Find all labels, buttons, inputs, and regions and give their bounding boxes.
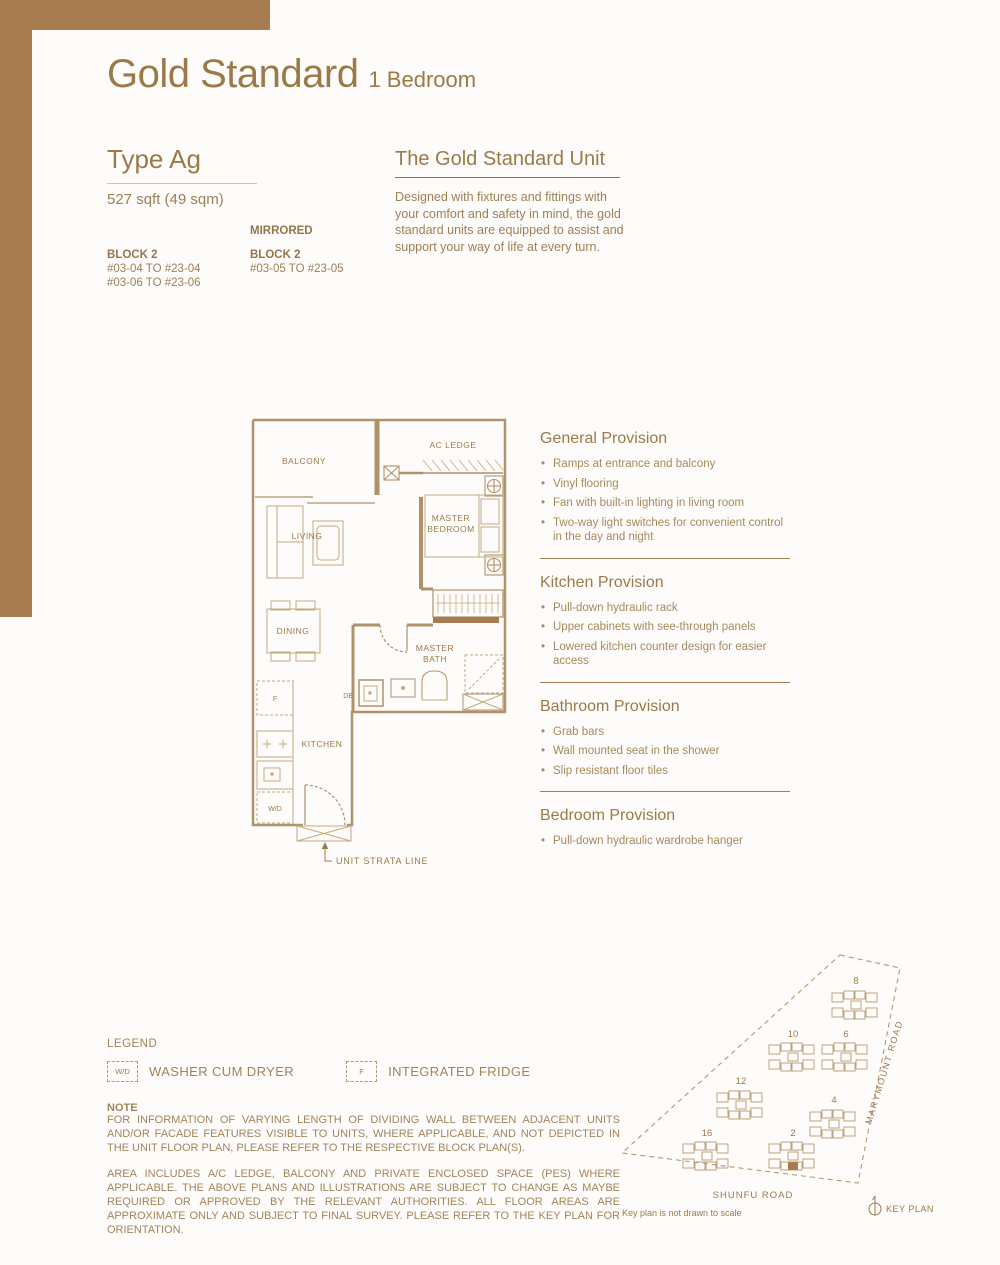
page-title: Gold Standard [107,52,358,97]
keyplan-block-label: 10 [788,1029,799,1040]
washer-dryer-symbol: W/D [107,1061,138,1082]
mirrored-label: MIRRORED [250,224,344,238]
note-section: NOTE FOR INFORMATION OF VARYING LENGTH O… [107,1102,620,1250]
note-paragraph: AREA INCLUDES A/C LEDGE, BALCONY AND PRI… [107,1168,620,1237]
brochure-page: Gold Standard 1 Bedroom Type Ag 527 sqft… [0,0,1000,1265]
keyplan-block-label: 16 [702,1128,713,1139]
label-kitchen: KITCHEN [302,739,343,749]
provision-heading-general: General Provision [540,430,790,448]
keyplan-block-label: 8 [853,976,858,987]
provision-heading-kitchen: Kitchen Provision [540,574,790,592]
provision-item: Pull-down hydraulic rack [540,601,790,616]
header: Gold Standard 1 Bedroom [107,52,476,97]
wardrobe-shelf [433,617,499,623]
keyplan-block-cluster [822,1043,867,1071]
provision-item: Vinyl flooring [540,477,790,492]
ac-ledge-hatch [423,460,503,471]
keyplan-block-label: 2 [790,1128,795,1139]
label-master-bedroom: MASTER [432,513,470,523]
strata-annotation [322,842,332,861]
unit-heading: The Gold Standard Unit [395,148,605,171]
label-balcony: BALCONY [282,456,326,466]
unit-range: #03-05 TO #23-05 [250,262,344,276]
keyplan-block-cluster [810,1110,855,1138]
road-label-marymount: MARYMOUNT ROAD [864,1019,905,1125]
section-divider [540,682,790,683]
provision-item: Grab bars [540,725,790,740]
label-ac-ledge: AC LEDGE [430,440,477,450]
block-info-primary: BLOCK 2 #03-04 TO #23-04 #03-06 TO #23-0… [107,248,201,290]
keyplan-label: KEY PLAN [886,1204,934,1214]
provision-item: Two-way light switches for convenient co… [540,516,790,545]
keyplan-block-cluster [717,1091,762,1119]
keyplan-disclaimer: Key plan is not drawn to scale [622,1208,742,1218]
type-rule [107,183,257,184]
provision-item: Ramps at entrance and balcony [540,457,790,472]
keyplan: 8 10 6 12 4 16 2 MARYMOUNT ROAD SHUNFU R… [613,950,998,1245]
provision-item: Pull-down hydraulic wardrobe hanger [540,834,790,849]
provision-item: Fan with built-in lighting in living roo… [540,496,790,511]
block-info-mirrored: MIRRORED BLOCK 2 #03-05 TO #23-05 [250,224,344,276]
provision-list-bathroom: Grab bars Wall mounted seat in the showe… [540,725,790,779]
label-master-bedroom: BEDROOM [427,524,474,534]
provision-list-kitchen: Pull-down hydraulic rack Upper cabinets … [540,601,790,669]
provision-heading-bedroom: Bedroom Provision [540,807,790,825]
keyplan-block-label: 6 [843,1029,848,1040]
legend-heading: LEGEND [107,1038,530,1050]
provision-list-general: Ramps at entrance and balcony Vinyl floo… [540,457,790,545]
provision-list-bedroom: Pull-down hydraulic wardrobe hanger [540,834,790,849]
page-subtitle: 1 Bedroom [368,67,476,93]
provision-heading-bathroom: Bathroom Provision [540,698,790,716]
fridge-symbol: F [346,1061,377,1082]
floorplan-furniture [257,495,503,841]
label-db: DB [343,693,353,700]
label-washer: W/D [268,806,282,813]
legend: LEGEND W/D WASHER CUM DRYER F INTEGRATED… [107,1038,530,1082]
keyplan-block-label: 4 [831,1095,836,1106]
north-compass-icon [869,1196,881,1215]
provision-item: Slip resistant floor tiles [540,764,790,779]
label-dining: DINING [277,626,310,636]
type-area: 527 sqft (49 sqm) [107,191,224,208]
block-name: BLOCK 2 [107,248,201,262]
corner-decoration-vertical [0,0,32,617]
keyplan-block-label: 12 [736,1076,747,1087]
floorplan: BALCONY AC LEDGE LIVING MASTER BEDROOM D… [247,413,537,873]
section-divider [540,791,790,792]
label-fridge: F [273,696,277,703]
provision-item: Lowered kitchen counter design for easie… [540,640,790,669]
unit-description: Designed with fixtures and fittings with… [395,189,633,255]
keyplan-block-cluster [769,1043,814,1071]
section-divider [540,558,790,559]
keyplan-block-cluster [832,991,877,1019]
legend-label: WASHER CUM DRYER [149,1064,294,1079]
note-heading: NOTE [107,1102,620,1114]
unit-rule [395,177,620,178]
label-living: LIVING [292,531,323,541]
legend-label: INTEGRATED FRIDGE [388,1064,530,1079]
note-paragraph: FOR INFORMATION OF VARYING LENGTH OF DIV… [107,1114,620,1155]
type-heading: Type Ag [107,144,201,175]
road-label-shunfu: SHUNFU ROAD [713,1190,794,1201]
highlighted-unit [788,1162,798,1170]
provision-item: Upper cabinets with see-through panels [540,620,790,635]
unit-range: #03-04 TO #23-04 [107,262,201,276]
label-unit-strata-line: UNIT STRATA LINE [336,856,428,866]
corner-decoration-horizontal [0,0,270,30]
provisions-panel: General Provision Ramps at entrance and … [540,430,790,854]
keyplan-clusters [683,991,877,1170]
label-master-bath: MASTER [416,643,454,653]
provision-item: Wall mounted seat in the shower [540,744,790,759]
label-master-bath: BATH [423,654,447,664]
block-name: BLOCK 2 [250,248,344,262]
unit-range: #03-06 TO #23-06 [107,276,201,290]
